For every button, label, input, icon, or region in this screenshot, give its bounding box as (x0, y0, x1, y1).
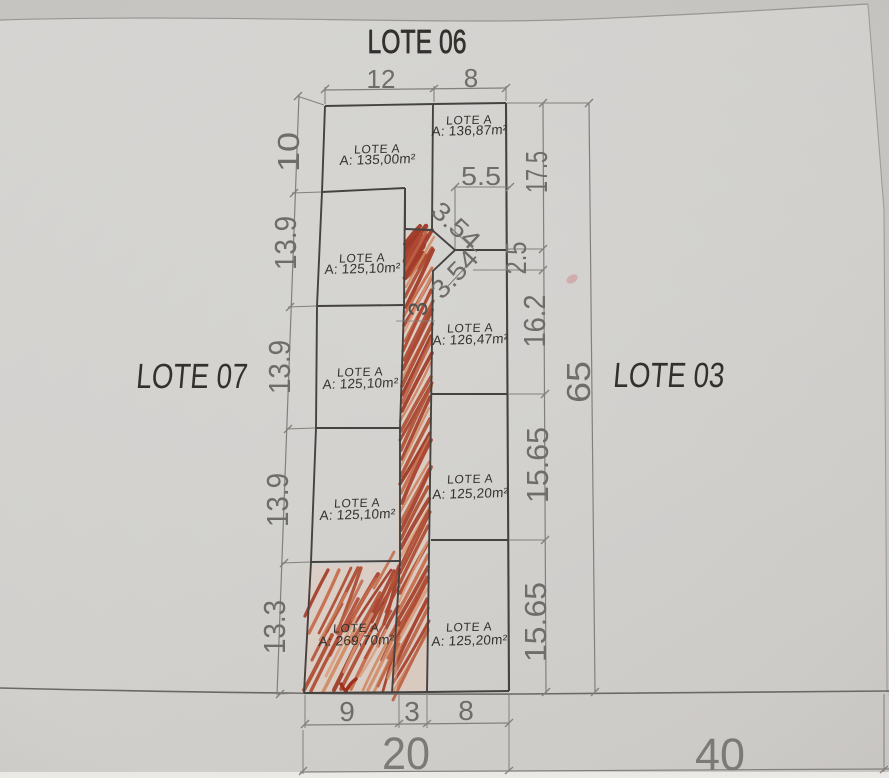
svg-text:A: 125,10m²: A: 125,10m² (322, 375, 399, 392)
svg-text:15.65: 15.65 (518, 582, 553, 662)
svg-text:5.5: 5.5 (461, 161, 501, 191)
svg-text:LOTE 07: LOTE 07 (135, 357, 249, 396)
svg-text:A: 136,87m²: A: 136,87m² (431, 122, 508, 139)
svg-text:A: 125,20m²: A: 125,20m² (431, 632, 508, 649)
svg-text:20: 20 (382, 728, 430, 778)
svg-text:LOTE A: LOTE A (447, 471, 494, 486)
svg-text:65: 65 (560, 361, 597, 403)
svg-text:A: 126,47m²: A: 126,47m² (432, 331, 509, 348)
svg-text:13.9: 13.9 (262, 340, 297, 394)
svg-text:13.9: 13.9 (268, 216, 303, 270)
svg-text:9: 9 (339, 696, 355, 727)
svg-text:17.5: 17.5 (519, 151, 554, 193)
svg-text:3: 3 (403, 302, 433, 316)
svg-text:LOTE 03: LOTE 03 (612, 356, 726, 395)
svg-text:16.2: 16.2 (517, 295, 552, 348)
svg-text:2.5: 2.5 (501, 242, 533, 275)
svg-text:15.65: 15.65 (520, 427, 555, 503)
svg-text:A: 135,00m²: A: 135,00m² (339, 151, 416, 168)
svg-text:A: 125,10m²: A: 125,10m² (319, 506, 396, 523)
svg-text:8: 8 (464, 63, 478, 93)
svg-text:12: 12 (367, 64, 396, 94)
svg-text:3: 3 (404, 696, 420, 727)
svg-text:13.9: 13.9 (260, 473, 295, 527)
svg-text:13.3: 13.3 (257, 600, 292, 654)
svg-text:A: 125,10m²: A: 125,10m² (324, 260, 401, 277)
svg-text:40: 40 (695, 729, 745, 778)
svg-text:A: 269,70m²: A: 269,70m² (318, 632, 395, 649)
svg-text:LOTE 06: LOTE 06 (368, 23, 467, 60)
svg-text:A: 125,20m²: A: 125,20m² (432, 485, 509, 502)
svg-text:8: 8 (458, 695, 474, 726)
svg-text:10: 10 (271, 132, 306, 172)
